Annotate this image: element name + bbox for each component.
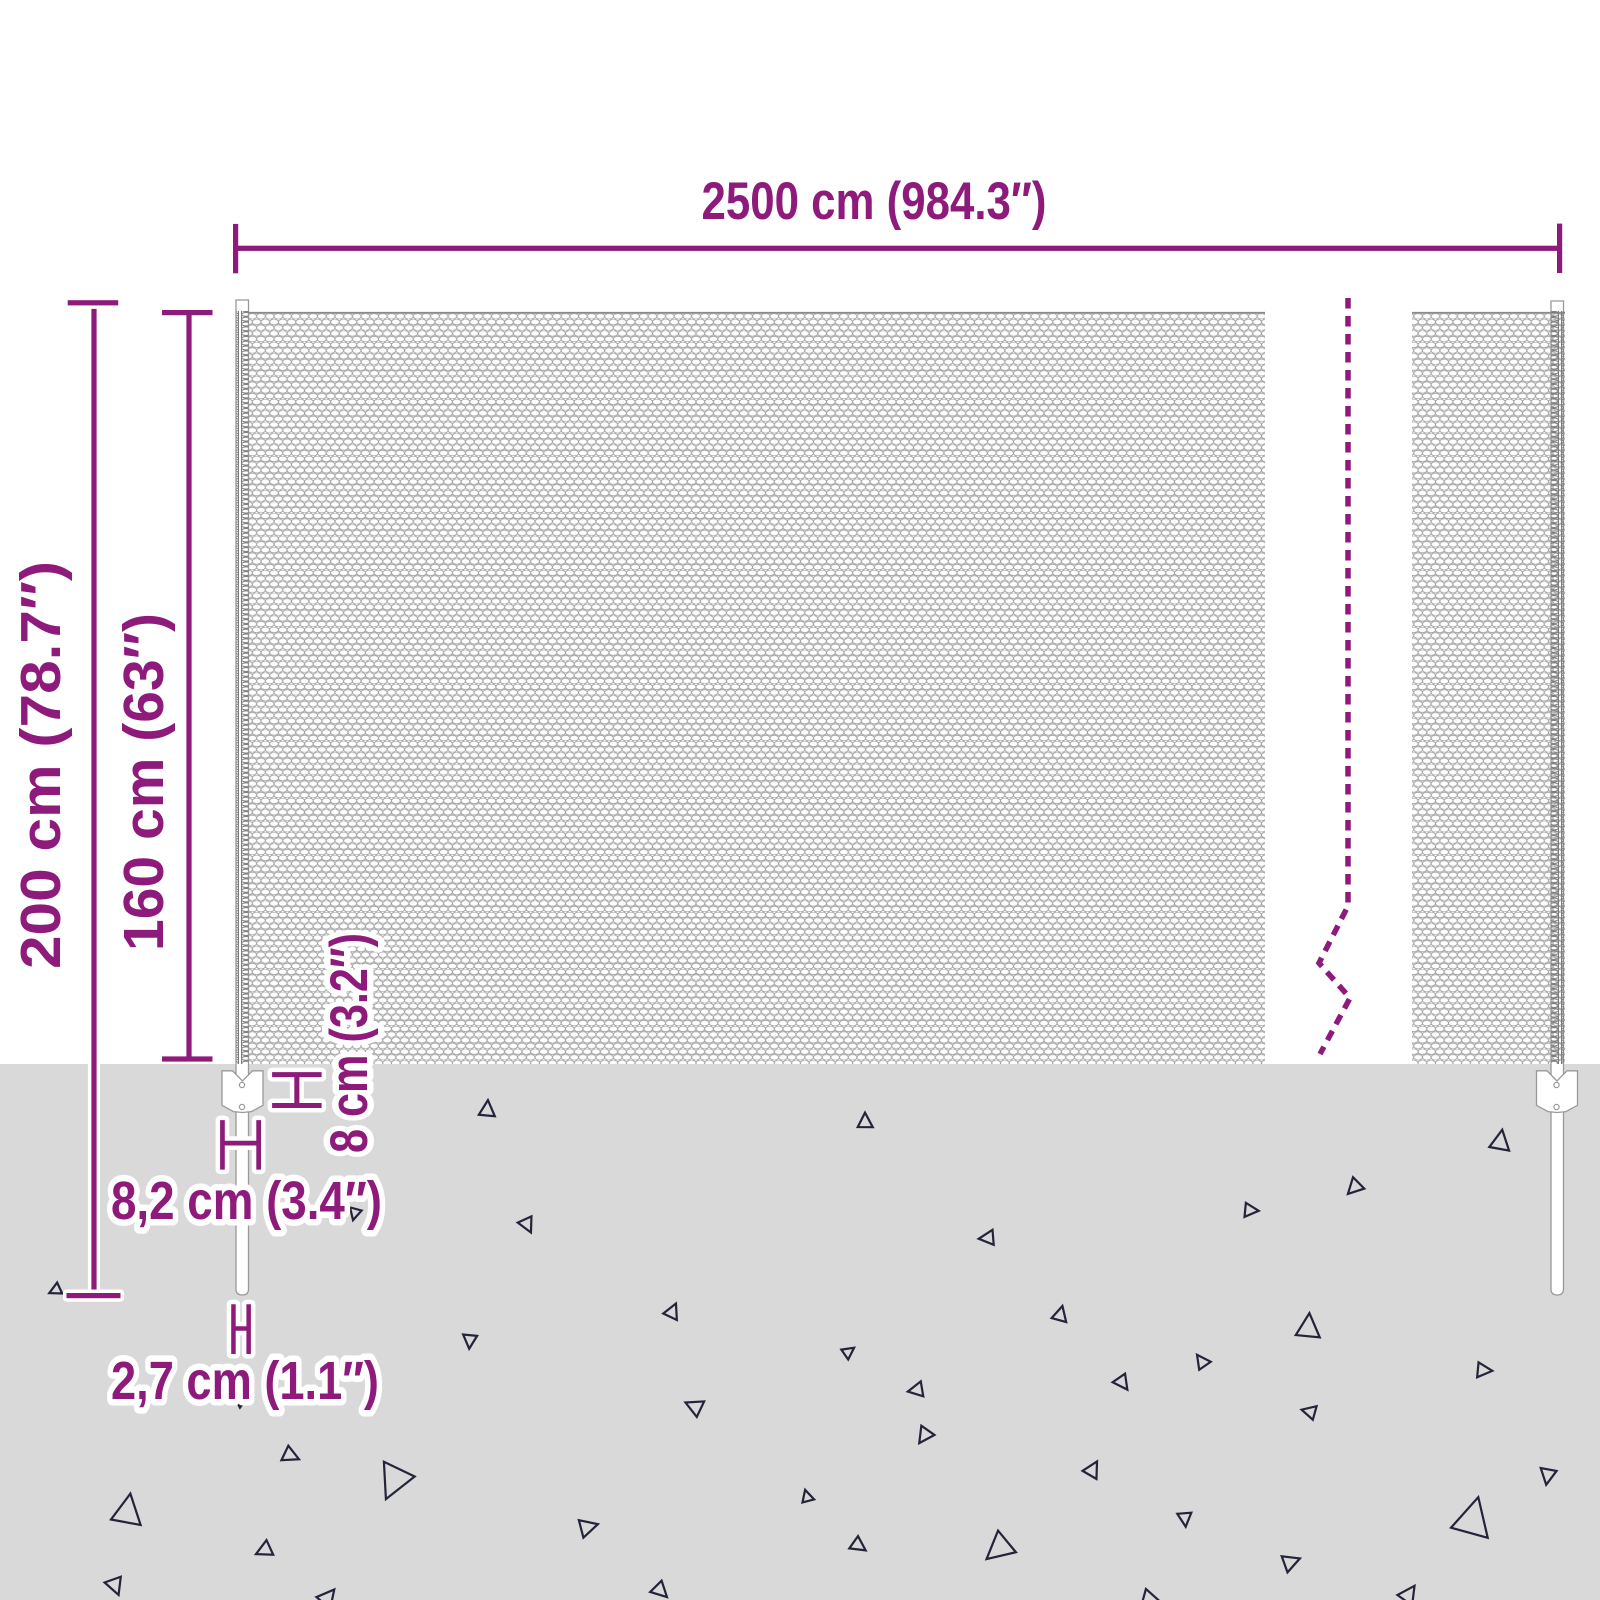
svg-text:2,7 cm (1.1″): 2,7 cm (1.1″)	[111, 1351, 379, 1411]
svg-text:200 cm (78.7″): 200 cm (78.7″)	[9, 561, 73, 969]
svg-text:8,2 cm (3.4″): 8,2 cm (3.4″)	[111, 1171, 382, 1231]
svg-text:2500 cm (984.3″): 2500 cm (984.3″)	[702, 172, 1047, 231]
svg-text:8 cm (3.2″): 8 cm (3.2″)	[320, 933, 379, 1153]
svg-text:160 cm (63″): 160 cm (63″)	[112, 613, 176, 951]
